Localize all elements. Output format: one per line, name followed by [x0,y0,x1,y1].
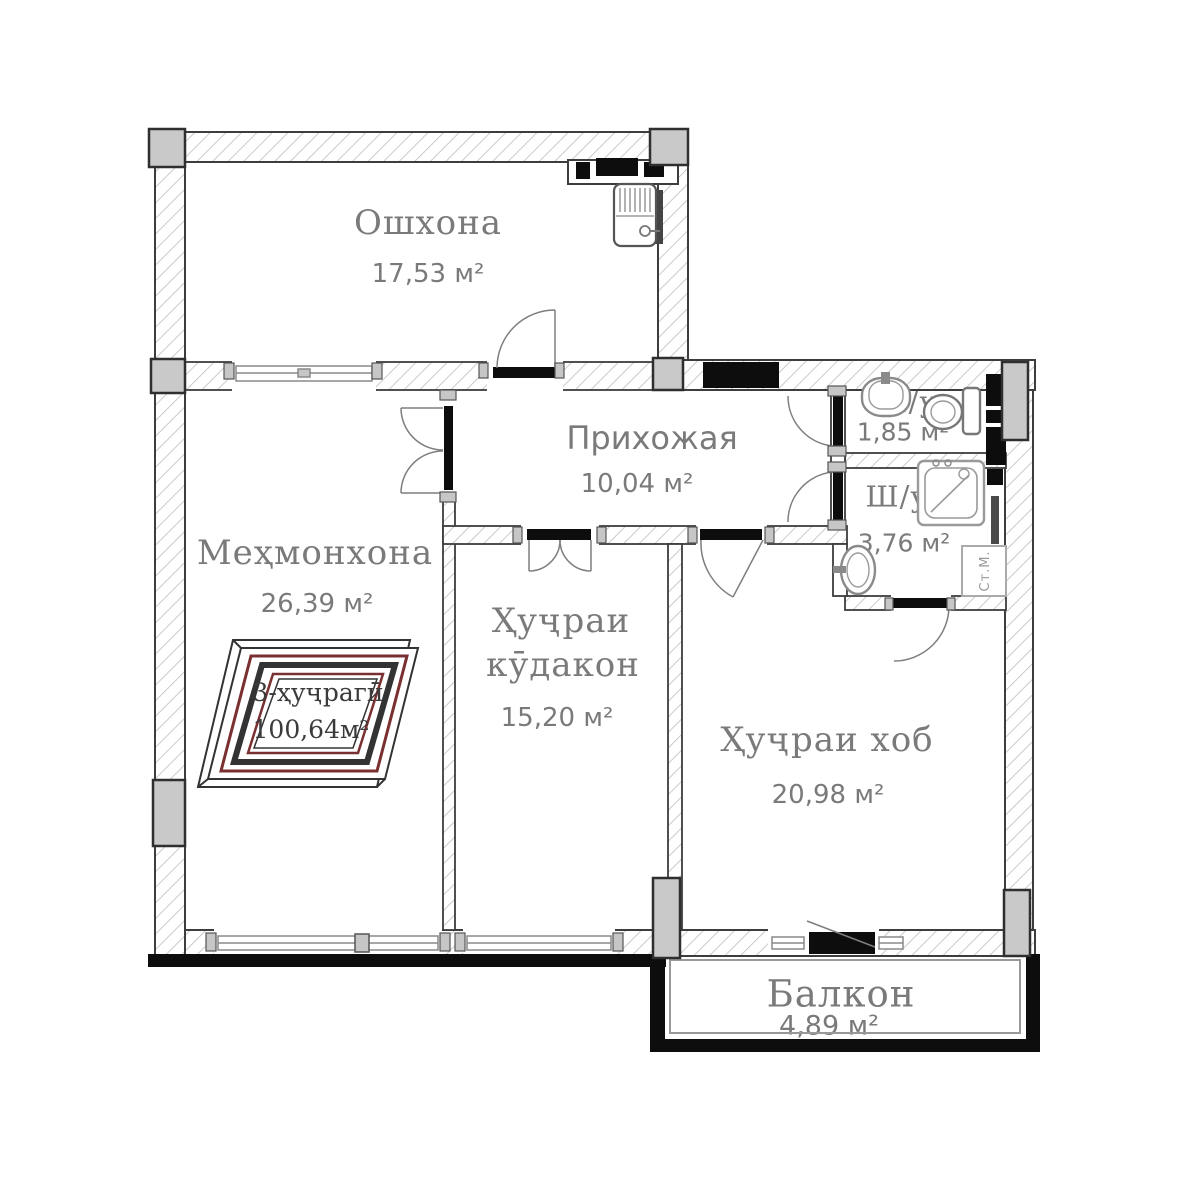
washing-machine-label: Ст.М. [978,550,993,591]
washing-machine-icon: Ст.М. [962,546,1006,596]
bath-big-second-door-leaf [893,598,949,608]
column-icon [151,359,185,393]
children-door-leaf [527,529,591,540]
duct-bar [991,496,999,544]
kitchen-top-wall [155,132,676,162]
kitchen-partition-window-icon [236,366,372,381]
bathtub-icon [918,460,984,525]
plan-drawing: Ст.М. 3-ҳуҷрагӣ 100,64м² [0,0,1181,1181]
hallway-bottom-wall [443,526,847,544]
logo-rooms-count: 3-ҳуҷрагӣ [252,678,383,707]
kitchen-door-swing-icon [497,310,555,368]
kitchen-sink-icon [614,184,663,246]
column-icon [1004,890,1030,956]
logo-emblem: 3-ҳуҷрагӣ 100,64м² [198,640,418,787]
bottom-exterior-line [148,954,666,967]
column-icon [653,358,683,390]
bath-big-second-door-swing-icon [894,606,949,661]
bedroom-door-swing-icon [701,540,733,597]
bedroom-door-leaf [700,529,762,540]
children-bedroom-wall [668,544,682,930]
living-double-door-leaf [444,406,453,490]
bath-big-door-leaf [833,472,843,522]
living-door-swing-bottom-icon [401,451,443,493]
toilet-icon [924,388,980,434]
column-icon [149,129,185,167]
right-wall [1005,390,1033,956]
interior-walls [185,362,1006,930]
column-icon [153,780,185,846]
balcony-structure [148,954,1040,1052]
floor-plan: Ошхона 17,53 м² Прихожая 10,04 м² Меҳмон… [0,0,1181,1181]
living-window-icon [218,934,438,952]
kitchen-door-leaf [493,367,555,378]
entrance-door-icon [703,362,779,388]
balcony-inner-rail [670,960,1020,1033]
bath-small-door-swing-icon [788,396,833,446]
bath-small-door-leaf [833,396,843,446]
bath-big-door-swing-icon [788,472,833,522]
column-icon [653,878,680,958]
living-door-swing-top-icon [401,408,443,450]
logo-total-area: 100,64м² [253,715,370,744]
column-icon [1002,362,1028,440]
children-window-icon [467,936,611,950]
column-icon [650,129,688,165]
